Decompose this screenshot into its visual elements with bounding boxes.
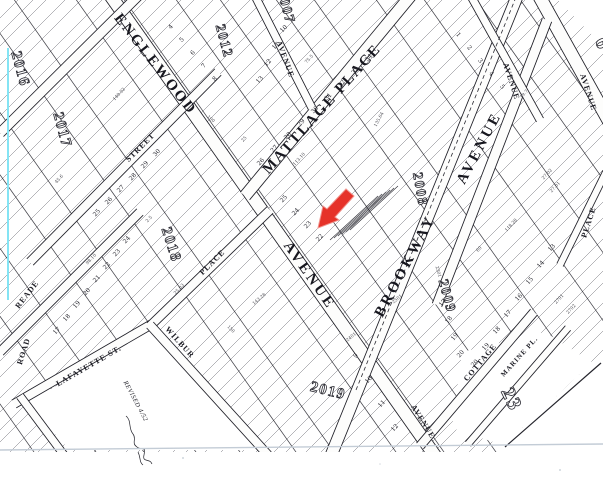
- dimension-text: 2702: [565, 303, 577, 316]
- dimension-text: 2301: [434, 265, 443, 278]
- dimension-text: 113.10: [292, 151, 307, 167]
- block-number-2018: 2018: [158, 225, 184, 264]
- lot-number: 4: [167, 23, 175, 31]
- block-number-2017: 2017: [49, 111, 74, 150]
- lot-number: 26: [104, 196, 114, 206]
- street-label-street: STREET: [124, 131, 157, 164]
- lot-number: 13: [547, 243, 557, 253]
- scan-speckle: [559, 469, 561, 471]
- location-arrow[interactable]: [318, 189, 354, 228]
- lot-number: 24: [122, 235, 132, 245]
- scanned-plat-map-page: ENGLEWOOD MATTLAGE PLACE AVENUE BROOKWAY…: [0, 0, 603, 489]
- scan-speckle: [379, 463, 381, 465]
- lot-number: 19: [450, 332, 460, 342]
- lot-number: 20: [82, 287, 92, 297]
- dimension-text: 2.5: [145, 215, 154, 224]
- lot-number: 10: [279, 24, 289, 34]
- lot-number: 29: [140, 160, 150, 170]
- lot-number: 19: [72, 300, 82, 310]
- dimension-text: 140.52: [112, 86, 127, 102]
- lot-number: 2: [465, 44, 473, 52]
- lot-number: 12: [390, 423, 400, 433]
- lot-number: 27: [116, 184, 126, 194]
- lot-number: 21: [92, 274, 102, 284]
- block-number-2019: 2019: [309, 379, 348, 403]
- lot-number: 16: [514, 292, 524, 302]
- block-number-2016: 2016: [7, 50, 32, 89]
- dimension-text: 60: [475, 245, 483, 253]
- lot-number: 6: [189, 49, 197, 57]
- dimension-text: 2701: [553, 293, 565, 306]
- street-label-avenue-main: AVENUE: [280, 239, 339, 313]
- lot-number: 23: [303, 220, 313, 230]
- open-block-wilbur-lafayette: [26, 330, 260, 450]
- dimension-text: 25: [240, 135, 248, 143]
- lot-number: 5: [498, 83, 506, 91]
- block-number-2007: 2007: [274, 0, 297, 25]
- lot-number: 18: [444, 315, 454, 325]
- lot-number: 1: [454, 31, 462, 38]
- lot-number: 24: [291, 207, 301, 217]
- lot-number: 30: [152, 148, 162, 158]
- block-number-2012: 2012: [212, 23, 235, 60]
- lot-number: 18: [62, 313, 72, 323]
- lot-number: 18: [492, 325, 502, 335]
- block-number-2008: 2008: [409, 171, 430, 207]
- dimension-text: 75.5: [304, 54, 315, 66]
- dimension-text: 143.28: [251, 292, 267, 307]
- lot-number: 17: [503, 309, 513, 319]
- lot-number: 12: [263, 58, 273, 68]
- lot-number: 25: [92, 208, 102, 218]
- plat-map-scan: ENGLEWOOD MATTLAGE PLACE AVENUE BROOKWAY…: [0, 0, 603, 489]
- lot-number: 22: [315, 233, 325, 243]
- lot-number: 15: [525, 276, 535, 286]
- scan-speckle: [182, 457, 184, 459]
- lot-number: 14: [536, 259, 546, 269]
- lot-number: 5: [178, 36, 186, 44]
- lot-number: 7: [200, 62, 208, 70]
- dimension-text: 45.6: [54, 174, 65, 186]
- lot-number: 13: [255, 75, 265, 85]
